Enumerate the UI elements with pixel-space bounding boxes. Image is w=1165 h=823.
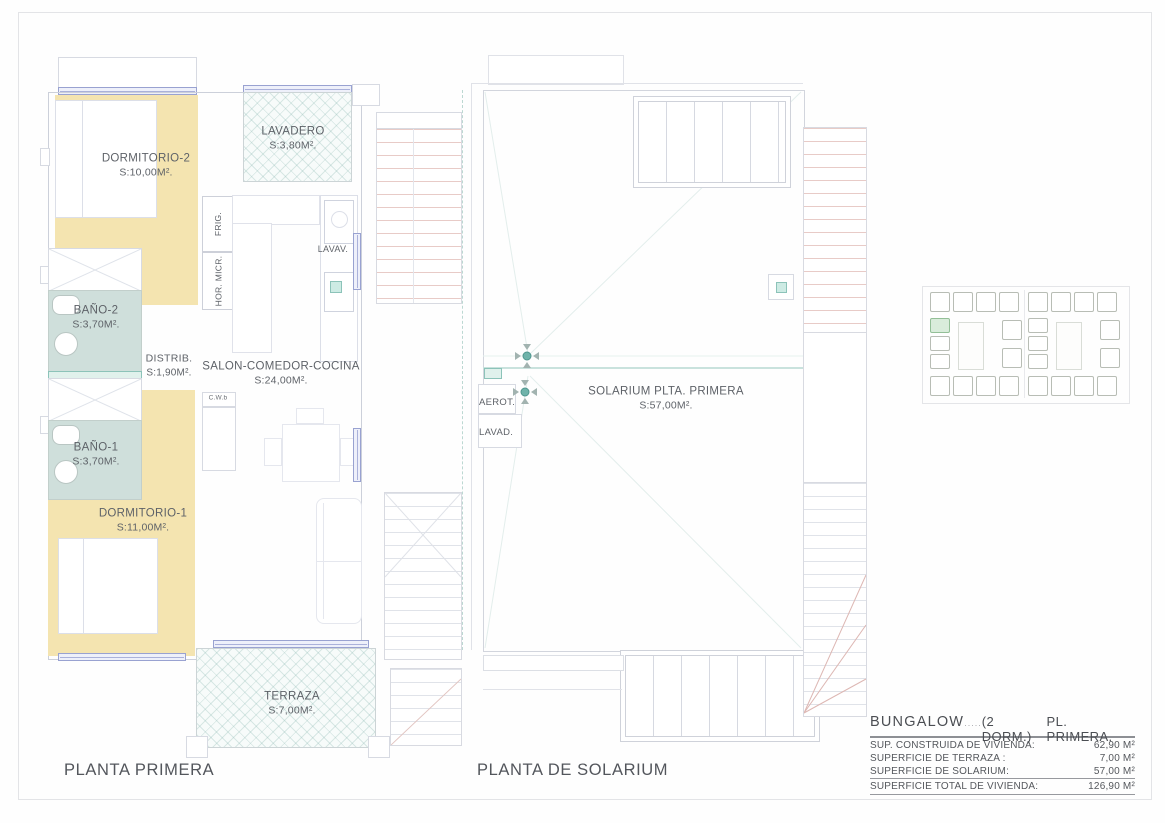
fridge: FRIG. xyxy=(202,196,234,252)
pergola xyxy=(620,650,820,742)
site-plan-courtyard xyxy=(958,322,984,370)
site-plan-unit xyxy=(1097,292,1117,312)
sink xyxy=(54,332,78,356)
roof-vent-icon xyxy=(514,343,540,369)
aerothermal-label: AEROT. xyxy=(479,397,515,408)
terrace-post xyxy=(368,736,390,758)
site-plan-unit xyxy=(999,292,1019,312)
roof-canopy xyxy=(58,57,197,90)
site-plan-unit xyxy=(1028,292,1048,312)
site-plan-unit xyxy=(999,376,1019,396)
site-plan-unit xyxy=(1074,292,1094,312)
fridge-label: FRIG. xyxy=(213,212,223,236)
site-plan-unit xyxy=(930,292,950,312)
window xyxy=(353,233,361,290)
site-plan-divider xyxy=(1024,290,1025,398)
parapet-line xyxy=(483,689,622,690)
room-label-dormitorio-2: DORMITORIO-2 S:10,00M². xyxy=(102,152,190,181)
roof-vent-icon xyxy=(512,379,538,405)
room-label-lavadero: LAVADERO S:3,80M². xyxy=(261,125,324,154)
window xyxy=(58,653,186,661)
staircase xyxy=(376,128,462,304)
site-plan-unit xyxy=(1002,348,1022,368)
spec-table-title: BUNGALOW ..... (2 DORM.) PL. PRIMERA. xyxy=(870,714,1135,738)
site-plan-unit xyxy=(1097,376,1117,396)
room-label-dormitorio-1: DORMITORIO-1 S:11,00M². xyxy=(99,507,187,536)
roof-canopy xyxy=(488,55,624,85)
window xyxy=(353,428,361,482)
room-label-salon: SALON-COMEDOR-COCINA S:24,00M². xyxy=(202,360,359,389)
window xyxy=(213,640,369,648)
staircase xyxy=(384,492,462,660)
corridor xyxy=(140,287,198,305)
site-plan-unit xyxy=(1002,320,1022,340)
parapet-wall xyxy=(483,655,624,671)
closet-label: C.W.b xyxy=(209,395,228,402)
site-plan-unit xyxy=(953,292,973,312)
title-dots: ..... xyxy=(964,718,982,728)
chimney xyxy=(768,274,794,300)
room-label-bano-2: BAÑO-2 S:3,70M². xyxy=(72,304,119,333)
staircase xyxy=(803,482,867,717)
spec-row: SUPERFICIE DE TERRAZA : 7,00 M² xyxy=(870,752,1135,765)
product-name: BUNGALOW xyxy=(870,714,964,730)
site-plan-block xyxy=(1028,292,1120,396)
roof-edge xyxy=(471,83,472,650)
site-plan-unit xyxy=(930,336,950,351)
room-label-solarium: SOLARIUM PLTA. PRIMERA S:57,00M². xyxy=(588,385,744,414)
terrace-post xyxy=(186,736,208,758)
site-plan-unit xyxy=(976,376,996,396)
laundry-label: LAVAD. xyxy=(479,427,513,438)
room-label-bano-1: BAÑO-1 S:3,70M². xyxy=(72,441,119,470)
oven-microwave-label: HOR. MICR. xyxy=(213,256,223,307)
plan-title-primera: PLANTA PRIMERA xyxy=(64,761,214,780)
site-plan-unit xyxy=(1100,320,1120,340)
staircase xyxy=(803,127,867,334)
room-label-distribuidor: DISTRIB. S:1,90M². xyxy=(146,353,193,380)
bed xyxy=(58,538,158,634)
site-plan-unit xyxy=(930,354,950,369)
spec-table: BUNGALOW ..... (2 DORM.) PL. PRIMERA. SU… xyxy=(870,714,1135,795)
spec-row: SUP. CONSTRUIDA DE VIVIENDA: 62,90 M² xyxy=(870,739,1135,752)
site-plan-unit xyxy=(1028,376,1048,396)
site-plan-unit xyxy=(1028,354,1048,369)
site-plan-unit xyxy=(930,376,950,396)
site-plan-block xyxy=(930,292,1022,396)
plot-boundary xyxy=(462,90,463,650)
pergola xyxy=(633,96,791,188)
kitchen-sink xyxy=(324,200,354,244)
stair-landing xyxy=(803,332,867,484)
kitchen-counter xyxy=(232,195,320,225)
room-label-terraza: TERRAZA S:7,00M². xyxy=(264,690,320,719)
vent-grille xyxy=(484,368,502,379)
site-plan-unit xyxy=(1051,292,1071,312)
chair xyxy=(264,438,282,466)
site-plan-unit xyxy=(1051,376,1071,396)
site-plan-unit-highlighted xyxy=(930,318,950,333)
dishwasher xyxy=(324,272,354,312)
chair xyxy=(296,408,324,424)
dining-table xyxy=(282,424,340,482)
site-plan-courtyard xyxy=(1056,322,1082,370)
site-plan-unit xyxy=(1028,336,1048,351)
spec-row-total: SUPERFICIE TOTAL DE VIVIENDA: 126,90 M² xyxy=(870,778,1135,795)
shower xyxy=(48,248,142,292)
plan-title-solarium: PLANTA DE SOLARIUM xyxy=(477,761,668,780)
dishwasher-label: LAVAV. xyxy=(318,244,349,254)
roof-edge xyxy=(471,83,803,84)
wardrobe xyxy=(202,407,236,471)
corridor xyxy=(140,390,195,500)
oven-microwave: HOR. MICR. xyxy=(202,252,234,310)
shower xyxy=(48,378,142,422)
sofa xyxy=(316,498,362,624)
site-plan-unit xyxy=(1074,376,1094,396)
site-plan-unit xyxy=(1028,318,1048,333)
site-plan-unit xyxy=(1100,348,1120,368)
pillar xyxy=(352,84,380,106)
wall-pier xyxy=(40,148,50,166)
spec-row: SUPERFICIE DE SOLARIUM: 57,00 M² xyxy=(870,765,1135,778)
staircase xyxy=(390,668,462,746)
site-plan-unit xyxy=(976,292,996,312)
kitchen-counter xyxy=(232,223,272,353)
floorplan-sheet: FRIG. HOR. MICR. xyxy=(0,0,1165,823)
site-plan-unit xyxy=(953,376,973,396)
